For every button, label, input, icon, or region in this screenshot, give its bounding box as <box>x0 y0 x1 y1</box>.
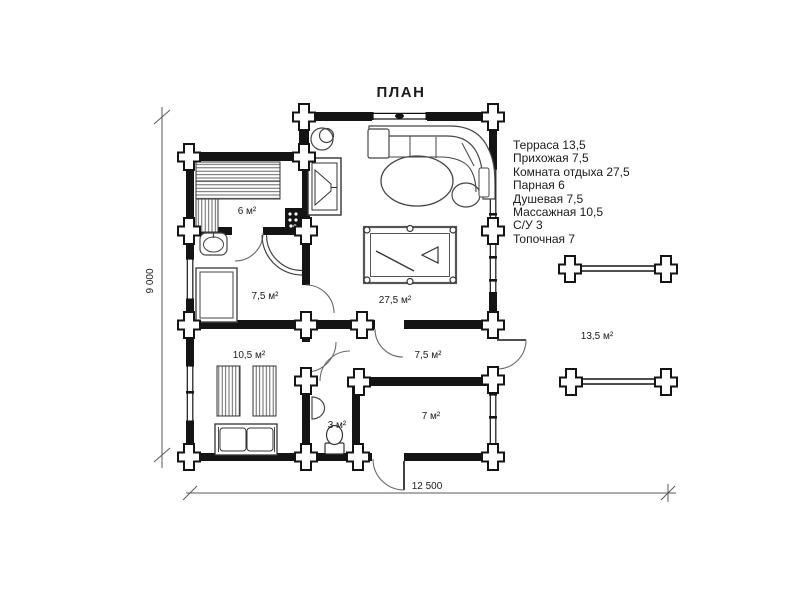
label-sauna-area: 6 м² <box>238 206 257 217</box>
window-left-2 <box>185 364 195 423</box>
floor-plan-canvas: ПЛАН Терраса 13,5 Прихожая 7,5 Комната о… <box>0 0 800 600</box>
massage-sofa <box>215 424 277 455</box>
label-boiler-area: 7 м² <box>422 411 441 422</box>
oval-table <box>381 156 453 206</box>
wc-sink <box>312 397 325 419</box>
terrace <box>559 256 677 395</box>
door-hall-lounge <box>375 329 403 357</box>
sofa-armrest <box>368 129 389 158</box>
label-massage-area: 10,5 м² <box>233 350 266 361</box>
sofa-chaise-cushion <box>479 168 489 197</box>
shower-sink <box>200 233 227 255</box>
sauna-benches <box>196 162 280 232</box>
floor-plan-drawing: 9 000 12 500 6 м² 7,5 м² 27,5 м² 7,5 м² … <box>0 0 800 600</box>
label-hall-area: 7,5 м² <box>415 350 443 361</box>
fireplace <box>308 158 341 215</box>
window-left-1 <box>185 257 195 301</box>
door-shower-lounge <box>306 285 334 313</box>
shower-cabin <box>262 235 302 275</box>
massage-tables <box>217 366 276 416</box>
label-shower-area: 7,5 м² <box>252 291 280 302</box>
shower-tray <box>196 268 237 322</box>
window-right-2 <box>488 245 498 292</box>
door-entrance <box>373 459 404 490</box>
label-lounge-area: 27,5 м² <box>379 295 412 306</box>
dimension-width-label: 12 500 <box>412 481 443 492</box>
window-top <box>371 111 428 121</box>
round-chair <box>311 128 334 150</box>
dimension-height-label: 9 000 <box>145 268 156 293</box>
terrace-posts <box>559 256 677 395</box>
label-wc-area: 3 м² <box>328 420 347 431</box>
label-terrace-area: 13,5 м² <box>581 331 614 342</box>
door-terrace <box>497 340 526 369</box>
window-right-3 <box>488 393 498 443</box>
billiard-table <box>364 226 456 285</box>
door-sauna <box>235 233 263 261</box>
